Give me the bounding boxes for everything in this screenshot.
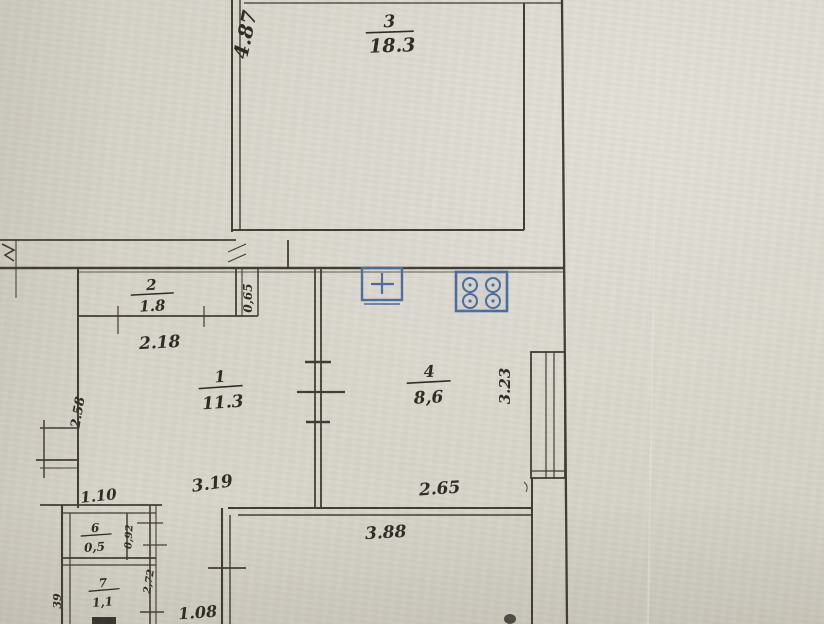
floor-plan-photo: 3 18.3 2 1.8 1 11.3 4 8,6 6 0,5 7 1,1 4.…: [0, 0, 824, 624]
room6-number: 6: [91, 521, 101, 536]
dim-niche-width: 1.10: [79, 485, 118, 507]
dim-kitchen-depth: 3.23: [496, 368, 514, 405]
room1-number: 1: [214, 367, 226, 387]
room2-area: 1.8: [139, 296, 167, 315]
dim-small-room-depth: 0,92: [123, 524, 135, 549]
room3-number: 3: [383, 12, 396, 32]
room4-area: 8,6: [412, 387, 444, 409]
svg-text:3.23: 3.23: [496, 368, 514, 405]
dim-edge-partial: 39: [51, 593, 64, 609]
room4-number: 4: [423, 362, 435, 382]
room1-area: 11.3: [201, 392, 244, 415]
stove-icon: [456, 272, 507, 311]
svg-text:0,65: 0,65: [241, 283, 255, 312]
room2-number: 2: [145, 276, 157, 295]
dim-closet-niche: 0,65: [241, 283, 255, 312]
dim-lower-left-offset: 1.08: [178, 602, 218, 624]
floor-plan-canvas: 3 18.3 2 1.8 1 11.3 4 8,6 6 0,5 7 1,1 4.…: [0, 0, 824, 624]
dim-lower-room-width: 3.88: [365, 522, 408, 544]
cutoff-digit-mark: [504, 614, 516, 624]
svg-text:39: 39: [51, 593, 64, 609]
room7-area: 1,1: [92, 594, 114, 610]
dim-kitchen-width: 2.65: [417, 478, 461, 501]
svg-text:0,92: 0,92: [123, 524, 135, 549]
room6-area: 0,5: [84, 539, 106, 554]
cutoff-dark-mark: [92, 617, 116, 624]
dim-closet-width: 2.18: [138, 332, 182, 354]
room3-area: 18.3: [369, 34, 416, 58]
